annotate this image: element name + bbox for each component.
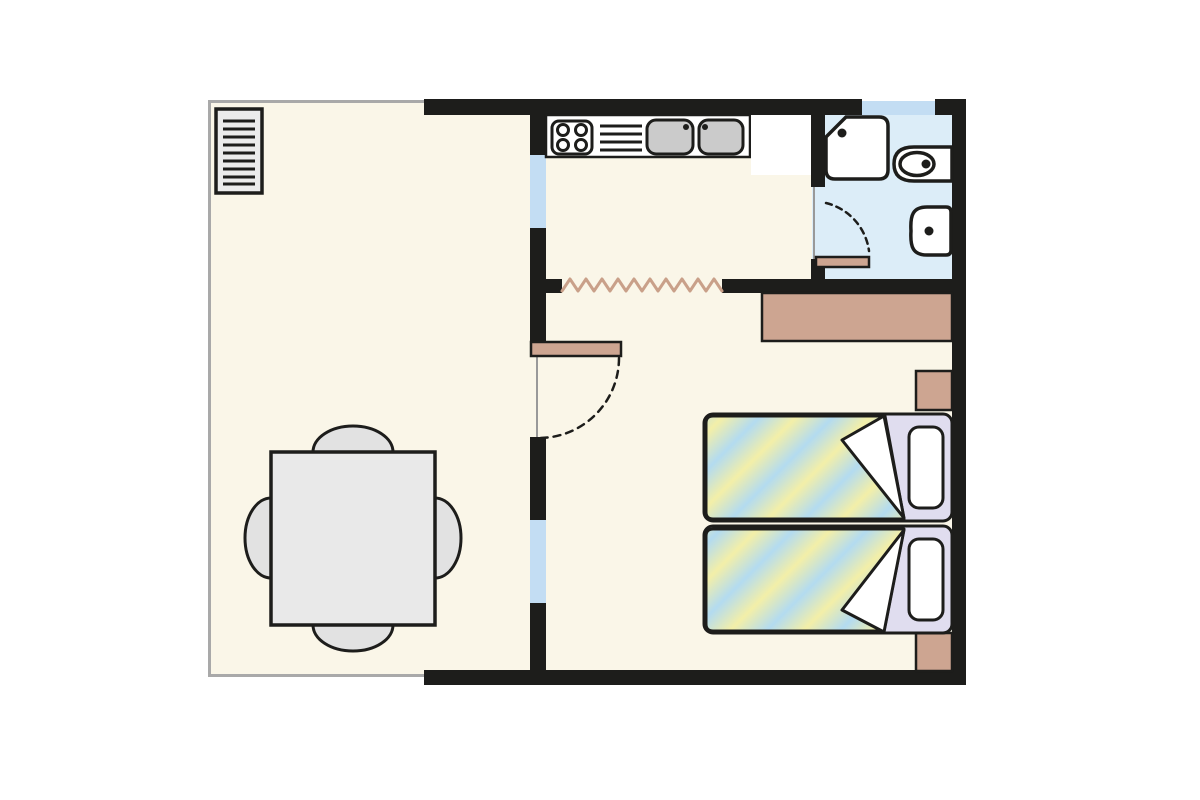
floor-plan-drawing [0,0,1200,800]
bedroom-door-leaf [531,342,621,356]
bathroom-door-opening-line [813,187,815,259]
nightstand-lower [916,633,952,671]
table-top [271,452,435,625]
bed-lower-icon [704,526,952,633]
kitchen-appliance-block [751,115,811,175]
wall-kitchen-west-a [530,99,546,155]
dining-table-icon [245,426,461,651]
wall-kitchen-west-c [530,437,546,520]
bathroom-door-leaf [816,257,869,267]
window-bathroom-top [862,101,935,115]
wall-bottom [424,670,966,685]
shower-icon [826,117,888,179]
bed-upper-pillow [909,427,943,508]
window-kitchen-west [530,155,546,228]
bedroom-door-opening-line [536,355,538,437]
bed-upper-icon [704,414,952,521]
wall-kitchen-west-b [530,228,546,342]
wall-zigzag-stub [546,279,562,293]
nightstand-upper [916,371,952,410]
wall-kitchen-west-d [530,603,546,685]
window-bedroom-west [530,520,546,603]
wall-bedroom-divider [722,279,952,293]
terrace-edge-bottom [208,674,424,677]
wall-top-left [424,99,862,115]
toilet-icon [894,147,952,181]
wall-bathroom-west-a [811,113,825,187]
kitchen-sink-right-icon [699,120,743,154]
bed-lower-pillow [909,539,943,620]
stove-icon [552,121,592,154]
washbasin-icon [911,207,951,255]
wall-east [952,99,966,685]
terrace-edge-top [208,100,424,103]
floor-plan [0,0,1200,800]
wardrobe [762,293,952,341]
kitchen-sink-left-icon [647,120,693,154]
radiator-icon [216,109,262,193]
terrace-edge-left [208,100,211,677]
